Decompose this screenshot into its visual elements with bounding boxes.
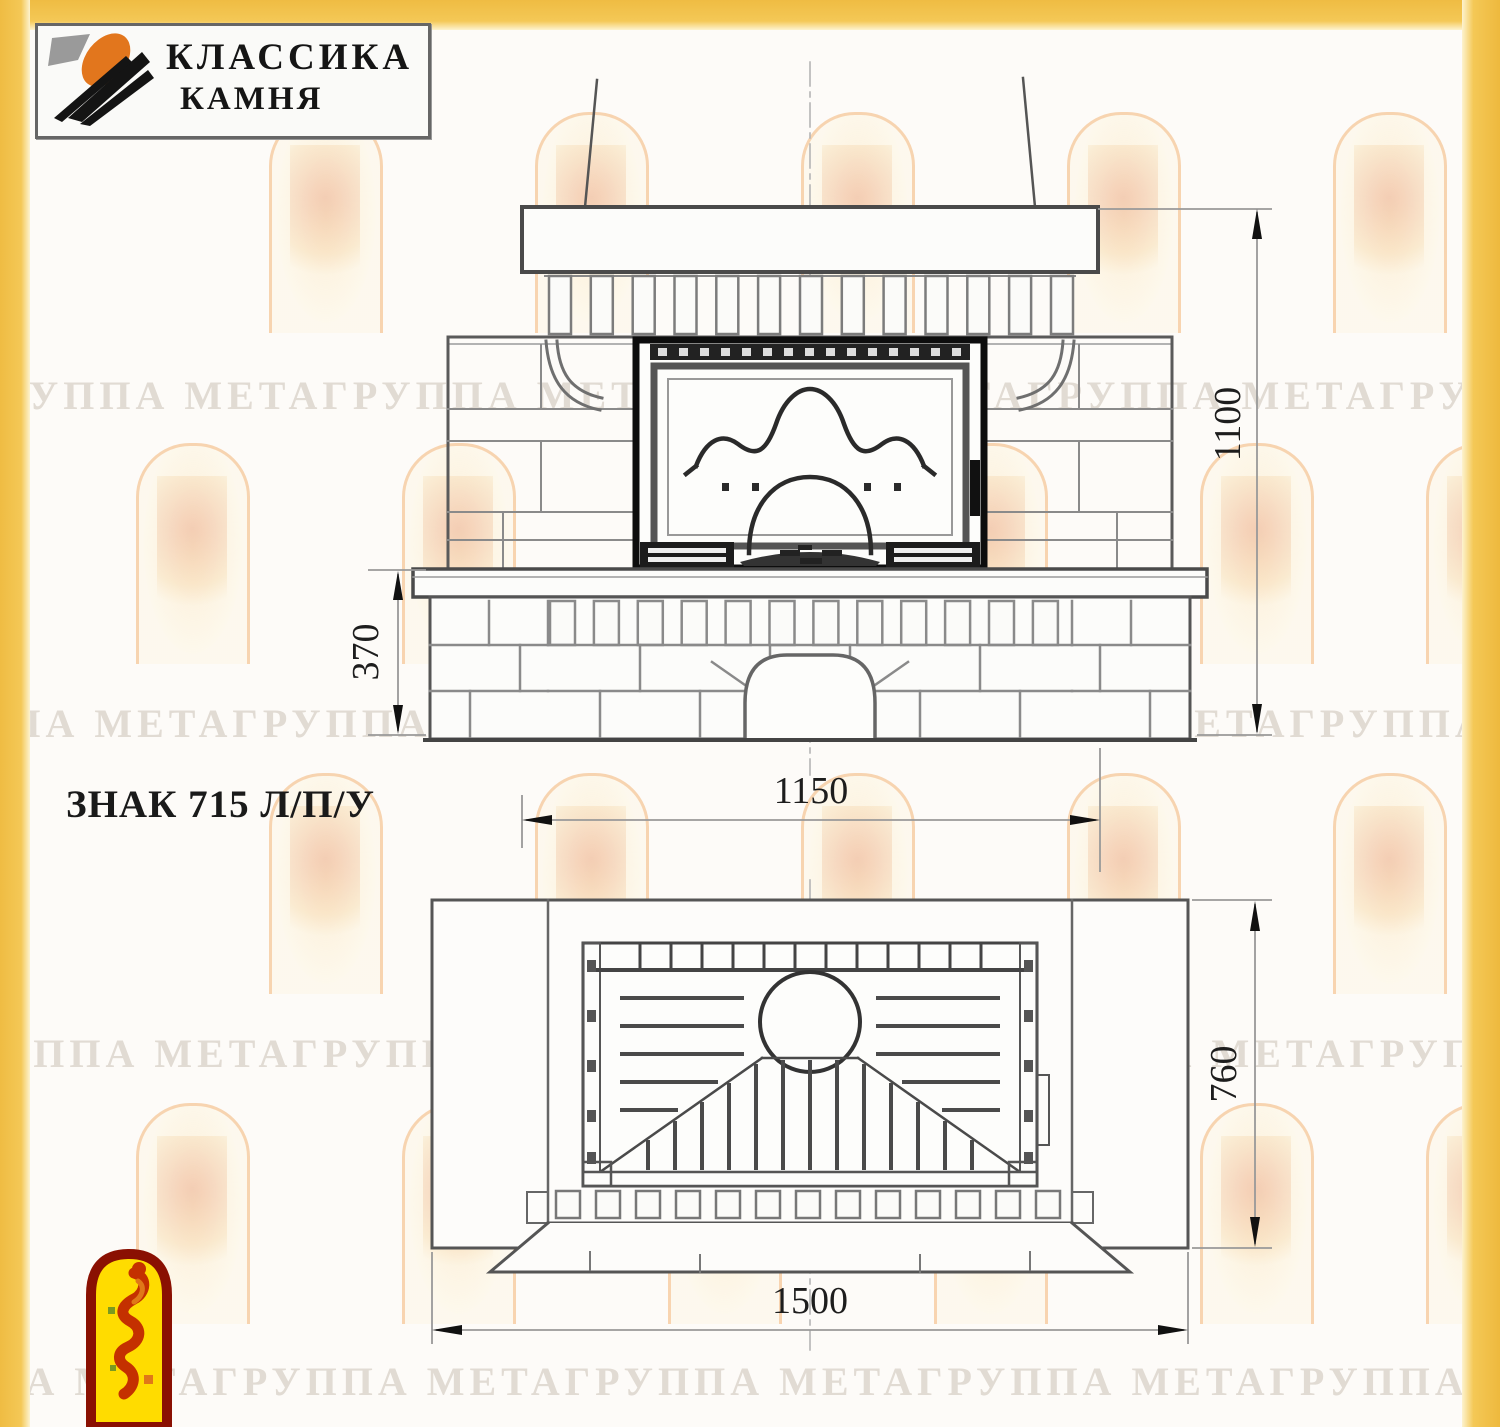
brand-name-line1: КЛАССИКА: [166, 36, 413, 79]
dim-label-370: 370: [345, 624, 387, 681]
dim-label-1500: 1500: [772, 1280, 848, 1322]
page: ГРУППА МЕТАГРУППА МЕТАГРУППА МЕТАГРУППА …: [0, 0, 1500, 1427]
brand-name-line2: КАМНЯ: [180, 81, 413, 118]
front-view: [413, 62, 1207, 775]
damper-vents: [658, 348, 961, 356]
dim-label-760: 760: [1203, 1046, 1245, 1103]
flue-line-left: [585, 80, 597, 207]
emblem-spot-green: [108, 1307, 115, 1314]
dim-label-1100: 1100: [1207, 387, 1249, 462]
emblem-head: [132, 1262, 146, 1276]
brand-logo-icon: [38, 26, 163, 130]
dim-1150: 1150: [522, 748, 1100, 872]
hearth-shelf: [413, 569, 1207, 597]
model-title: ЗНАК 715 Л/П/У: [66, 782, 375, 827]
frame-bar-left: [0, 0, 30, 1427]
wood-niche-arch: [745, 655, 875, 739]
door-handle: [970, 460, 980, 516]
emblem-spot-green2: [110, 1365, 116, 1371]
dim-label-1150: 1150: [774, 770, 849, 812]
emblem-spot-orange: [144, 1375, 153, 1384]
flue-line-right: [1023, 78, 1035, 207]
brand-text: КЛАССИКА КАМНЯ: [166, 36, 413, 118]
fireplace-technical-drawing: 1100 370 1150: [0, 0, 1500, 1427]
mantel-shelf: [522, 207, 1098, 272]
dim-760: 760: [1192, 900, 1272, 1248]
brand-logo-box: КЛАССИКА КАМНЯ: [35, 23, 431, 139]
hearth-slab-plan: [490, 1223, 1130, 1272]
dentil-row-top: [549, 276, 1073, 334]
firebox-frame: [636, 340, 984, 568]
frame-bar-right: [1462, 0, 1500, 1427]
meta-emblem: [84, 1247, 174, 1427]
